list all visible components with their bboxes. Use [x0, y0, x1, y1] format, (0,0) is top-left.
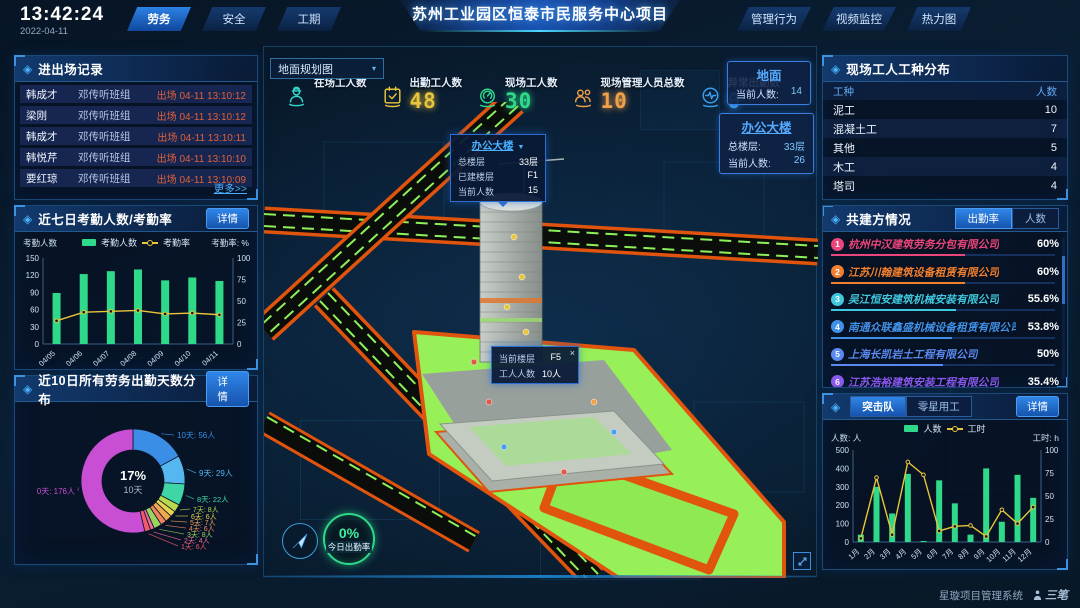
worker-icon [284, 83, 309, 113]
panel-header: ◈ 现场工人工种分布 [823, 56, 1067, 82]
svg-text:5月: 5月 [909, 547, 924, 561]
diamond-icon: ◈ [831, 400, 840, 414]
nav-right: 管理行为视频监控热力图 [737, 7, 971, 31]
team-name: 邓传听班组 [78, 150, 152, 165]
squad-tab[interactable]: 零星用工 [906, 396, 972, 417]
building-card[interactable]: 办公大楼 总楼层:33层 当前人数:26 [719, 113, 814, 174]
team-name: 邓传听班组 [78, 171, 152, 186]
svg-text:12月: 12月 [1016, 547, 1034, 564]
company-name: 杭州中汉建筑劳务分包有限公司 [848, 236, 999, 252]
progress-fill [831, 282, 965, 284]
page-title-banner: 苏州工业园区恒泰市民服务中心项目 [400, 0, 680, 30]
svg-text:0: 0 [845, 538, 850, 547]
svg-text:17%: 17% [120, 468, 146, 483]
worker-type: 其他 [833, 140, 855, 156]
svg-text:0: 0 [1045, 538, 1050, 547]
map-view-value: 地面规划图 [278, 61, 333, 77]
day-distribution-panel: ◈ 近10日所有劳务出勤天数分布 详情 10天: 56人9天: 29人8天: 2… [14, 375, 258, 565]
table-header-row: 工种人数 [823, 82, 1067, 100]
svg-text:120: 120 [26, 271, 40, 280]
svg-text:100: 100 [237, 254, 251, 263]
worker-count: 7 [1051, 123, 1057, 135]
diamond-icon: ◈ [23, 62, 32, 76]
people-icon [571, 83, 596, 113]
worker-name: 韩成才 [26, 129, 78, 144]
site-3d-map[interactable]: 地面规划图 ▾ 在场工人数出勤工人数48现场工人数30现场管理人员总数10异常出… [263, 46, 817, 577]
entry-exit-row: 梁刚邓传听班组出场 04-11 13:10:12 [20, 106, 252, 124]
stat-label: 现场管理人员总数 [601, 75, 685, 90]
svg-text:100: 100 [1045, 446, 1059, 455]
left-axis-title: 考勤人数 [23, 237, 57, 249]
panel-header: ◈ 近10日所有劳务出勤天数分布 详情 [15, 376, 257, 402]
progress-track [831, 337, 1055, 339]
nav-left: 劳务安全工期 [127, 7, 341, 31]
progress-track [831, 309, 1055, 311]
diamond-icon: ◈ [23, 212, 32, 226]
tooltip-row: 已建楼层F1 [458, 170, 538, 183]
logo-person-icon [1033, 590, 1042, 601]
svg-text:10天: 10天 [123, 485, 142, 495]
card-title: 地面 [736, 65, 802, 84]
svg-text:50: 50 [1045, 492, 1054, 501]
worker-type: 塔司 [833, 178, 855, 194]
compass-control[interactable] [282, 523, 318, 559]
company-name: 上海长凯岩土工程有限公司 [848, 346, 978, 362]
table-row: 塔司4 [823, 176, 1067, 195]
navigation-arrow-icon [289, 530, 311, 552]
team-name: 邓传听班组 [78, 129, 152, 144]
svg-text:500: 500 [836, 446, 850, 455]
svg-text:04/09: 04/09 [146, 349, 166, 368]
progress-fill [831, 309, 956, 311]
card-row: 总楼层:33层 [728, 138, 805, 153]
attendance-value: 55.6% [1028, 293, 1059, 305]
attendance-value: 35.4% [1028, 376, 1059, 388]
svg-text:50: 50 [237, 297, 246, 306]
exit-event: 出场 04-11 13:10:12 [157, 87, 246, 102]
svg-text:4月: 4月 [893, 547, 908, 561]
squad-tab[interactable]: 突击队 [850, 396, 906, 417]
clock: 13:42:24 2022-04-11 [20, 5, 104, 37]
date-display: 2022-04-11 [20, 27, 104, 37]
svg-text:11月: 11月 [1000, 547, 1017, 564]
partners-tab[interactable]: 人数 [1012, 208, 1059, 229]
svg-text:04/06: 04/06 [64, 349, 84, 368]
progress-fill [831, 254, 965, 256]
right-axis-title: 考勤率: % [211, 237, 249, 249]
site-stat: 现场管理人员总数10 [571, 75, 685, 113]
entry-exit-row: 韩成才邓传听班组出场 04-11 13:10:11 [20, 127, 252, 145]
scrollbar[interactable] [1062, 238, 1065, 379]
svg-text:25: 25 [1045, 515, 1054, 524]
attendance-value: 53.8% [1028, 321, 1059, 333]
site-stat: 出勤工人数48 [380, 75, 463, 113]
calendar-check-icon [380, 83, 405, 113]
tooltip-row: 当前楼层F5 [499, 352, 571, 365]
floor-tooltip: × 当前楼层F5 工人人数10人 [491, 346, 579, 384]
top-bar: 13:42:24 2022-04-11 劳务安全工期 苏州工业园区恒泰市民服务中… [0, 0, 1080, 40]
svg-text:10天: 56人: 10天: 56人 [177, 431, 215, 440]
partner-row: 1杭州中汉建筑劳务分包有限公司60% [831, 236, 1059, 264]
stat-value: 48 [410, 90, 463, 112]
page-title: 苏州工业园区恒泰市民服务中心项目 [412, 6, 668, 23]
partners-tabs: 出勤率人数 [955, 208, 1060, 229]
squad-chart: 010020030040050002550751001月2月3月4月5月6月7月… [823, 442, 1067, 566]
bar-legend-swatch [904, 425, 918, 432]
svg-text:150: 150 [26, 254, 40, 263]
partners-tab[interactable]: 出勤率 [955, 208, 1013, 229]
svg-text:04/10: 04/10 [173, 349, 193, 368]
panel-header: ◈ 共建方情况 出勤率人数 [823, 206, 1067, 232]
partner-row: 3吴江恒安建筑机械安装有限公司55.6% [831, 291, 1059, 319]
progress-track [831, 254, 1055, 256]
nav-tab[interactable]: 安全 [202, 7, 266, 31]
progress-fill [831, 337, 952, 339]
chevron-down-icon: ▼ [518, 144, 525, 151]
diamond-icon: ◈ [23, 382, 32, 396]
rank-badge: 1 [831, 238, 844, 251]
tooltip-row: 当前人数15 [458, 185, 538, 198]
rank-badge: 4 [831, 320, 844, 333]
svg-text:75: 75 [237, 276, 246, 285]
table-row: 泥工10 [823, 100, 1067, 119]
svg-text:400: 400 [836, 464, 850, 473]
bar-legend-label: 考勤人数 [101, 236, 137, 249]
squad-panel: ◈ 突击队零星用工 详情 人数 工时 人数: 人 工时: h 010020030… [822, 393, 1068, 570]
ground-card[interactable]: 地面 当前人数:14 [727, 61, 811, 105]
building-tooltip: 办公大楼▼ 总楼层33层 已建楼层F1 当前人数15 [450, 134, 546, 202]
worker-name: 韩成才 [26, 87, 78, 102]
entry-exit-list: 韩成才邓传听班组出场 04-11 13:10:12梁刚邓传听班组出场 04-11… [15, 85, 257, 187]
brand-logo: 三笔 [1033, 587, 1068, 603]
company-name: 江苏浩裕建筑安装工程有限公司 [848, 374, 999, 389]
site-stat: 在场工人数 [284, 75, 367, 113]
company-name: 南通众联鑫盛机械设备租赁有限公司 [848, 319, 1016, 335]
line-legend-marker [142, 242, 158, 244]
attendance-chart: 0306090120150025507510004/0504/0604/0704… [15, 250, 259, 368]
company-name: 江苏川翰建筑设备租赁有限公司 [848, 264, 999, 280]
site-stats-row: 在场工人数出勤工人数48现场工人数30现场管理人员总数10异常出勤数0 [284, 75, 780, 113]
worker-name: 要红琼 [26, 171, 78, 186]
dashboard-root: 13:42:24 2022-04-11 劳务安全工期 苏州工业园区恒泰市民服务中… [0, 0, 1080, 608]
card-row: 当前人数:14 [736, 86, 802, 101]
svg-text:7月: 7月 [940, 547, 955, 561]
svg-text:1天: 6人: 1天: 6人 [181, 543, 207, 551]
day-distribution-donut-chart: 10天: 56人9天: 29人8天: 22人7天: 8人6天: 6人5天: 7人… [15, 402, 259, 564]
brand-text: 三笔 [1045, 587, 1068, 603]
stat-value: 10 [601, 90, 685, 112]
svg-text:300: 300 [836, 483, 850, 492]
line-legend-marker [947, 428, 963, 430]
detail-button[interactable]: 详情 [1016, 396, 1059, 417]
svg-text:04/05: 04/05 [37, 349, 57, 368]
svg-text:200: 200 [836, 501, 850, 510]
svg-text:7天: 8人: 7天: 8人 [193, 506, 219, 514]
today-attendance-value: 0% [339, 525, 359, 541]
nav-tab[interactable]: 视频监控 [822, 7, 896, 31]
panel-header: ◈ 近七日考勤人数/考勤率 详情 [15, 206, 257, 232]
time-display: 13:42:24 [20, 5, 104, 26]
worker-type: 泥工 [833, 102, 855, 118]
svg-text:30: 30 [30, 323, 39, 332]
attendance-value: 60% [1037, 266, 1059, 278]
bar-legend-swatch [82, 239, 96, 246]
rank-badge: 3 [831, 293, 844, 306]
attendance-value: 50% [1037, 348, 1059, 360]
partner-row: 6江苏浩裕建筑安装工程有限公司35.4% [831, 374, 1059, 389]
svg-text:75: 75 [1045, 469, 1054, 478]
worker-name: 韩悦芹 [26, 150, 78, 165]
building-tooltip-title[interactable]: 办公大楼▼ [458, 138, 538, 153]
tooltip-row: 总楼层33层 [458, 155, 538, 168]
scrollbar-thumb[interactable] [1062, 256, 1065, 304]
svg-text:8月: 8月 [956, 547, 971, 561]
col-header: 工种 [833, 84, 854, 99]
stat-value: 30 [505, 90, 558, 112]
worker-count: 4 [1051, 180, 1057, 192]
panel-title: 进出场记录 [38, 59, 103, 78]
chevron-down-icon: ▾ [372, 64, 376, 73]
worker-types-panel: ◈ 现场工人工种分布 工种人数泥工10混凝土工7其他5木工4塔司4 [822, 55, 1068, 200]
table-row: 混凝土工7 [823, 119, 1067, 138]
table-row: 其他5 [823, 138, 1067, 157]
card-title: 办公大楼 [728, 117, 805, 136]
stat-label: 现场工人数 [505, 75, 558, 90]
svg-text:8天: 22人: 8天: 22人 [197, 495, 229, 504]
stat-label: 出勤工人数 [410, 75, 463, 90]
attendance-panel: ◈ 近七日考勤人数/考勤率 详情 考勤人数 考勤率 考勤人数 考勤率: % 03… [14, 205, 258, 370]
detail-button[interactable]: 详情 [206, 208, 249, 229]
svg-text:0: 0 [35, 340, 40, 349]
svg-text:25: 25 [237, 319, 246, 328]
stat-value [314, 90, 367, 112]
svg-text:2月: 2月 [862, 547, 877, 561]
panel-title: 现场工人工种分布 [846, 59, 950, 78]
worker-type: 木工 [833, 159, 855, 175]
table-row: 木工4 [823, 157, 1067, 176]
svg-text:9天: 29人: 9天: 29人 [199, 469, 233, 478]
svg-text:3月: 3月 [878, 547, 893, 561]
squad-tabs: 突击队零星用工 [850, 396, 972, 417]
footer: 星璇项目管理系统 三笔 [939, 587, 1068, 603]
tooltip-row: 工人人数10人 [499, 367, 571, 380]
panel-title: 共建方情况 [846, 209, 911, 228]
company-name: 吴江恒安建筑机械安装有限公司 [848, 291, 999, 307]
title-glow-line [420, 30, 660, 32]
line-legend-label: 工时 [968, 422, 986, 435]
svg-text:9月: 9月 [972, 547, 987, 561]
entry-exit-panel: ◈ 进出场记录 韩成才邓传听班组出场 04-11 13:10:12梁刚邓传听班组… [14, 55, 258, 200]
exit-event: 出场 04-11 13:10:11 [157, 129, 246, 144]
progress-track [831, 364, 1055, 366]
svg-text:04/07: 04/07 [91, 349, 111, 368]
rank-badge: 5 [831, 348, 844, 361]
entry-exit-row: 韩成才邓传听班组出场 04-11 13:10:12 [20, 85, 252, 103]
gauge-icon [475, 83, 500, 113]
partner-row: 4南通众联鑫盛机械设备租赁有限公司53.8% [831, 319, 1059, 347]
entry-exit-row: 韩悦芹邓传听班组出场 04-11 13:10:10 [20, 148, 252, 166]
worker-name: 梁刚 [26, 108, 78, 123]
more-link[interactable]: 更多>> [214, 181, 247, 196]
today-attendance-gauge: 0% 今日出勤率 [323, 513, 375, 565]
fullscreen-button[interactable] [793, 552, 811, 570]
svg-text:04/08: 04/08 [118, 349, 138, 368]
partner-row: 2江苏川翰建筑设备租赁有限公司60% [831, 264, 1059, 292]
svg-text:1月: 1月 [846, 547, 861, 561]
svg-text:0: 0 [237, 340, 242, 349]
system-name: 星璇项目管理系统 [939, 588, 1023, 603]
svg-text:0天: 176人: 0天: 176人 [37, 487, 75, 496]
partners-list: 1杭州中汉建筑劳务分包有限公司60%2江苏川翰建筑设备租赁有限公司60%3吴江恒… [823, 232, 1067, 388]
panel-header: ◈ 突击队零星用工 详情 [823, 394, 1067, 420]
panel-title: 近七日考勤人数/考勤率 [38, 209, 172, 228]
line-legend-label: 考勤率 [163, 236, 190, 249]
exit-event: 出场 04-11 13:10:10 [157, 150, 246, 165]
svg-text:100: 100 [836, 520, 850, 529]
map-view-select[interactable]: 地面规划图 ▾ [270, 58, 384, 79]
exit-event: 出场 04-11 13:10:12 [157, 108, 246, 123]
progress-track [831, 282, 1055, 284]
attendance-value: 60% [1037, 238, 1059, 250]
diamond-icon: ◈ [831, 62, 840, 76]
svg-text:04/11: 04/11 [200, 349, 220, 368]
card-row: 当前人数:26 [728, 155, 805, 170]
partner-row: 5上海长凯岩土工程有限公司50% [831, 346, 1059, 374]
nav-tab[interactable]: 工期 [277, 7, 341, 31]
rank-badge: 6 [831, 375, 844, 388]
progress-fill [831, 364, 943, 366]
nav-tab[interactable]: 劳务 [127, 7, 191, 31]
site-stat: 现场工人数30 [475, 75, 558, 113]
worker-count: 5 [1051, 142, 1057, 154]
rank-badge: 2 [831, 265, 844, 278]
expand-icon [797, 556, 808, 567]
today-attendance-label: 今日出勤率 [326, 541, 373, 553]
panel-header: ◈ 进出场记录 [15, 56, 257, 82]
team-name: 邓传听班组 [78, 108, 152, 123]
svg-text:60: 60 [30, 306, 39, 315]
svg-text:10月: 10月 [984, 547, 1002, 564]
team-name: 邓传听班组 [78, 87, 152, 102]
bar-legend-label: 人数 [923, 422, 941, 435]
close-icon[interactable]: × [570, 348, 575, 358]
partners-panel: ◈ 共建方情况 出勤率人数 1杭州中汉建筑劳务分包有限公司60%2江苏川翰建筑设… [822, 205, 1068, 388]
worker-type: 混凝土工 [833, 121, 877, 137]
col-header: 人数 [1036, 84, 1057, 99]
svg-text:6月: 6月 [925, 547, 940, 561]
svg-text:90: 90 [30, 288, 39, 297]
pulse-icon [698, 83, 723, 113]
nav-tab[interactable]: 管理行为 [737, 7, 811, 31]
diamond-icon: ◈ [831, 212, 840, 226]
worker-count: 4 [1051, 161, 1057, 173]
nav-tab[interactable]: 热力图 [907, 7, 971, 31]
worker-types-table: 工种人数泥工10混凝土工7其他5木工4塔司4 [823, 82, 1067, 195]
worker-count: 10 [1045, 104, 1057, 116]
